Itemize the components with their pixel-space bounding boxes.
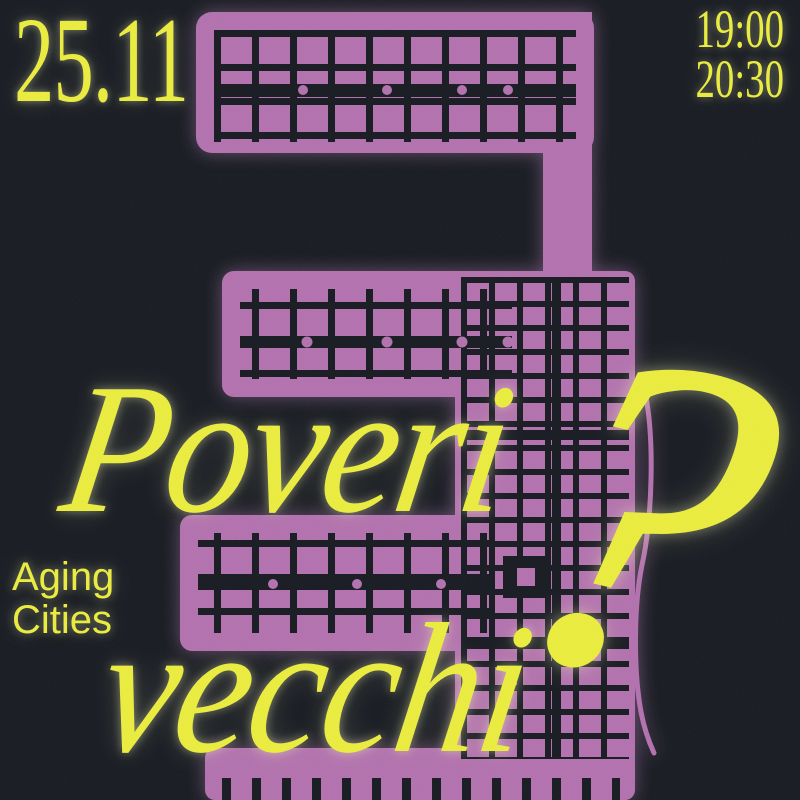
headline-word-vecchi: vecchi: [90, 596, 541, 782]
time-start: 19:00: [695, 4, 784, 54]
poster-canvas: ? 25.11 19:00 20:30 Poveri vecchi Aging …: [0, 0, 800, 800]
headline-word-poveri: Poveri: [52, 356, 522, 542]
date-label: 25.11: [14, 0, 188, 122]
event-times: 19:00 20:30: [695, 4, 784, 104]
time-end: 20:30: [695, 54, 784, 104]
subtitle-line-cities: Cities: [12, 599, 114, 642]
subtitle-line-aging: Aging: [12, 556, 114, 599]
aging-cities-label: Aging Cities: [12, 556, 114, 642]
